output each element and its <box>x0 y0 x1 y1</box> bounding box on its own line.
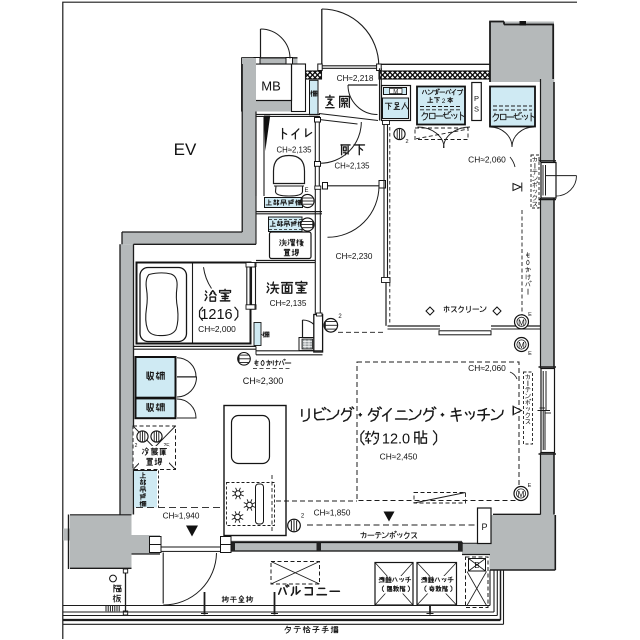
svg-text:2: 2 <box>135 443 138 449</box>
svg-text:CH≈2,135: CH≈2,135 <box>276 146 312 155</box>
svg-text:CH≈2,450: CH≈2,450 <box>380 452 418 462</box>
svg-text:MB: MB <box>261 79 281 94</box>
svg-text:1216: 1216 <box>200 307 232 323</box>
svg-text:CH≈1,940: CH≈1,940 <box>163 512 200 521</box>
svg-text:E: E <box>528 483 532 489</box>
svg-text:P: P <box>481 522 487 532</box>
svg-text:E: E <box>304 188 308 194</box>
svg-text:CH≈2,135: CH≈2,135 <box>334 162 370 171</box>
svg-text:CH≈2,060: CH≈2,060 <box>468 363 506 373</box>
svg-text:S: S <box>474 105 479 114</box>
svg-text:EV: EV <box>174 140 197 159</box>
svg-text:M: M <box>393 89 398 95</box>
svg-text:CH≈2,135: CH≈2,135 <box>270 299 307 308</box>
svg-text:B: B <box>474 561 479 570</box>
svg-text:CH≈1,850: CH≈1,850 <box>314 509 351 518</box>
svg-text:CH≈2,060: CH≈2,060 <box>468 155 506 165</box>
svg-text:P: P <box>474 94 479 103</box>
svg-text:CH≈2,230: CH≈2,230 <box>336 252 373 261</box>
svg-text:12.0: 12.0 <box>382 432 410 448</box>
svg-text:CH≈2,300: CH≈2,300 <box>243 376 283 386</box>
svg-text:CH≈2,000: CH≈2,000 <box>198 324 236 334</box>
svg-text:E: E <box>528 312 532 318</box>
svg-text:E: E <box>528 351 532 357</box>
svg-text:2: 2 <box>405 139 408 145</box>
svg-text:2: 2 <box>442 98 446 105</box>
svg-text:CH≈2,218: CH≈2,218 <box>337 74 374 83</box>
